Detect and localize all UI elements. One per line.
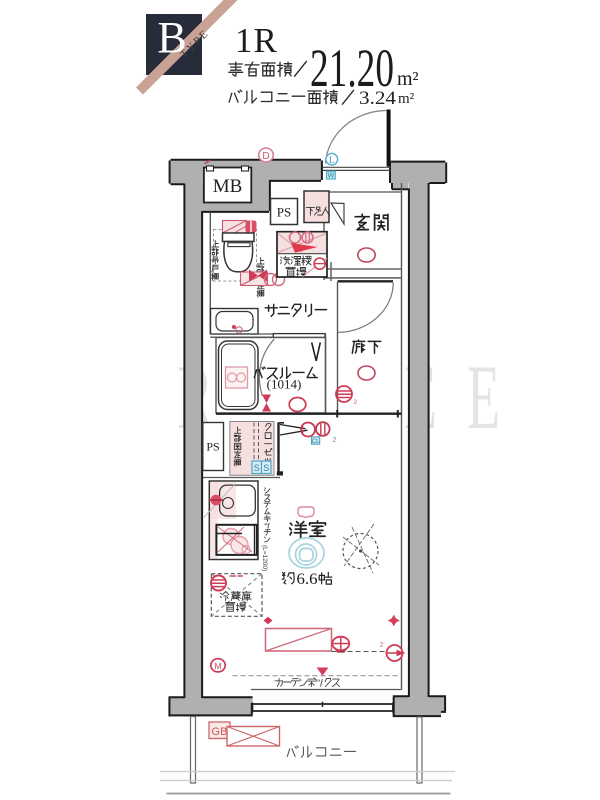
svg-text:E: E xyxy=(467,346,500,448)
svg-text:2: 2 xyxy=(380,640,384,649)
svg-text:L: L xyxy=(329,156,335,166)
svg-text:m²: m² xyxy=(398,91,415,107)
svg-text:6.6: 6.6 xyxy=(297,571,318,588)
svg-text:3.24: 3.24 xyxy=(359,88,397,109)
svg-text:S: S xyxy=(263,463,269,473)
svg-text:PS: PS xyxy=(277,205,291,220)
svg-text:1R: 1R xyxy=(235,21,278,60)
svg-text:(1014): (1014) xyxy=(267,377,302,392)
svg-text:2: 2 xyxy=(354,399,358,406)
svg-text:MB: MB xyxy=(213,176,243,197)
svg-text:S: S xyxy=(254,463,260,473)
svg-text:D: D xyxy=(262,151,269,162)
svg-text:PS: PS xyxy=(206,440,219,454)
svg-text:CL: CL xyxy=(312,439,320,445)
svg-text:GB: GB xyxy=(212,726,228,738)
svg-text:W: W xyxy=(328,173,335,180)
svg-text:2: 2 xyxy=(333,437,337,444)
svg-text:(L=1200): (L=1200) xyxy=(261,545,268,571)
svg-text:m²: m² xyxy=(397,68,419,90)
svg-text:M: M xyxy=(214,661,221,671)
